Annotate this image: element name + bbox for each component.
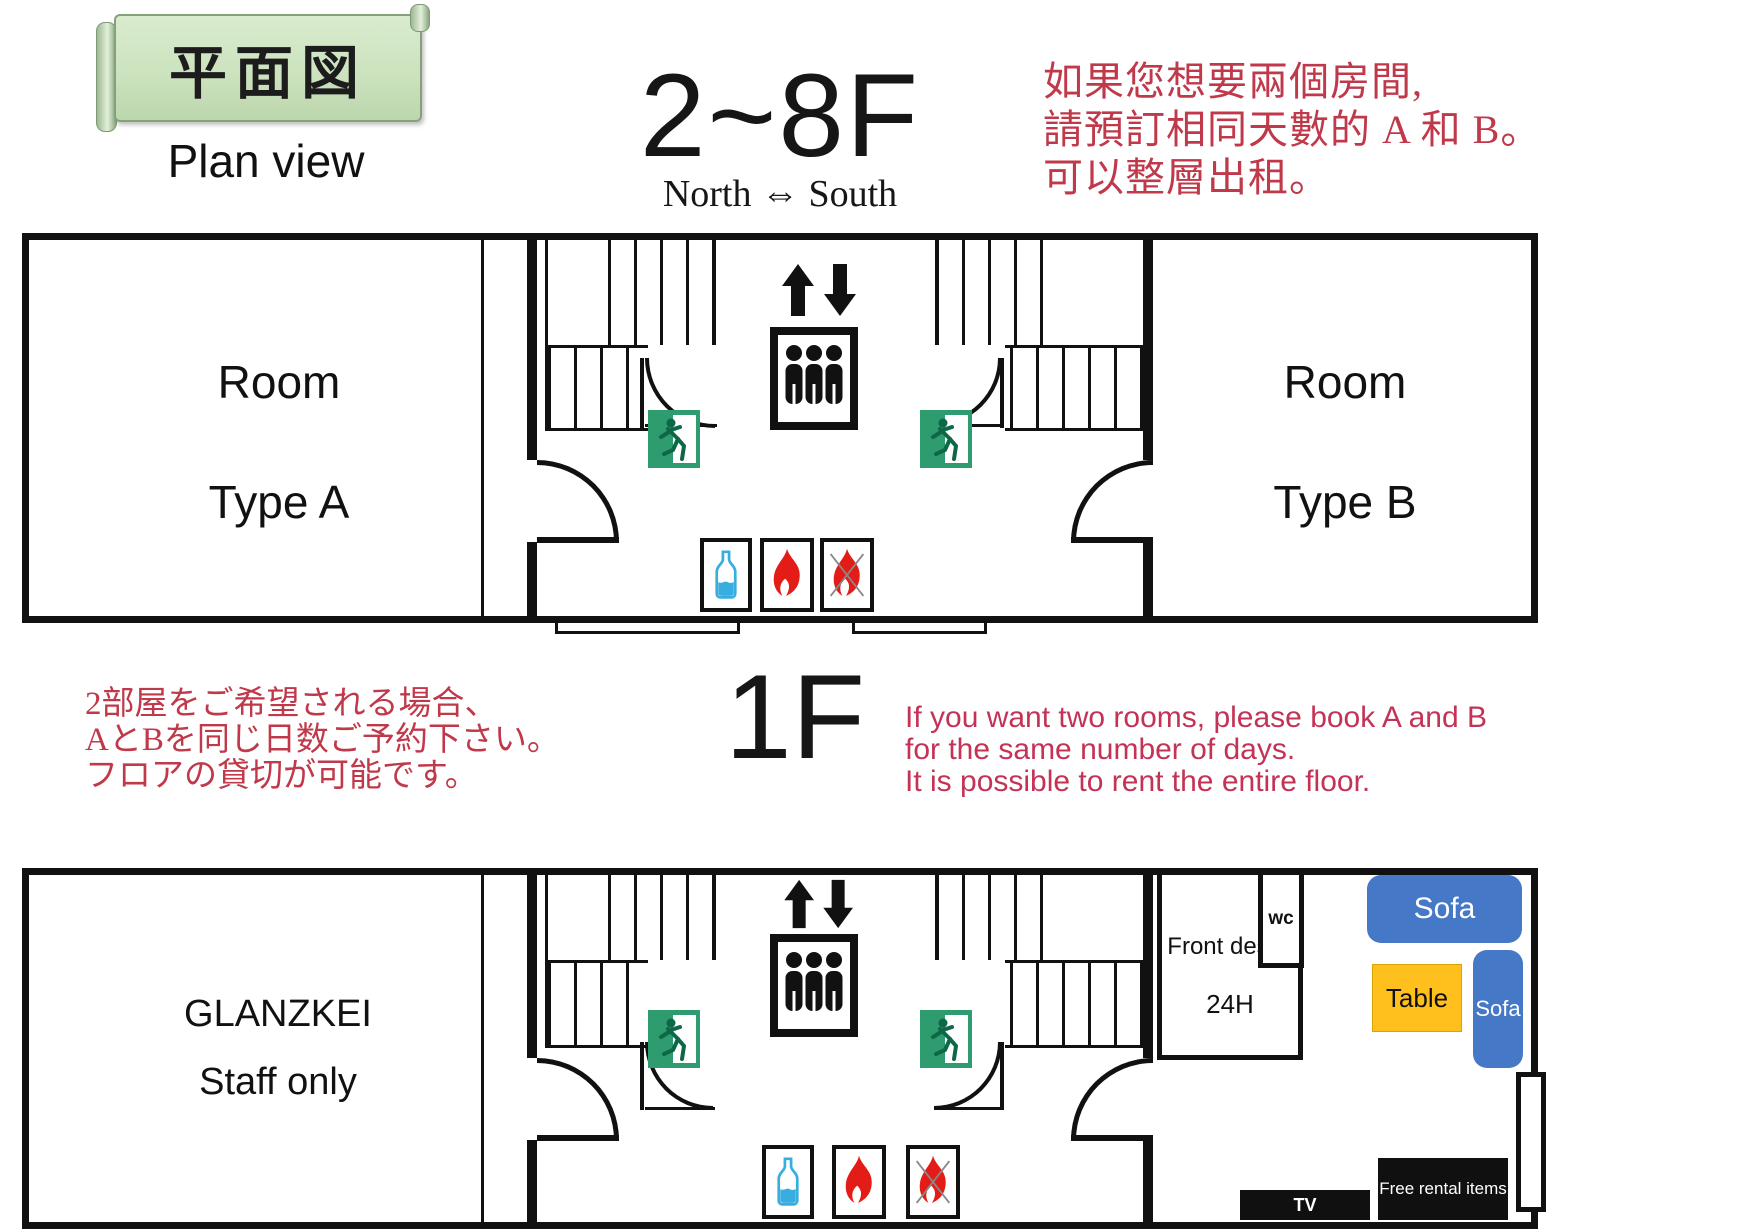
room-b-type-label: Type B [1115,475,1575,529]
note-chinese-line: 如果您想要兩個房間, [1043,58,1583,106]
sofa-side: Sofa [1473,950,1523,1068]
note-chinese: 如果您想要兩個房間, 請預訂相同天數的 A 和 B。 可以整層出租。 [1043,58,1583,202]
note-japanese-line: AとBを同じ日数ご予約下さい。 [85,722,605,758]
door-arc [537,1058,619,1140]
banner-title: 平面図 [169,26,367,110]
stairs [935,240,1043,345]
stair-landing [545,875,611,960]
door-leaf [640,1042,644,1110]
front-desk-hours: 24H [1162,989,1298,1020]
wall-segment [934,1107,1004,1110]
room-a-label: Room [49,355,509,409]
note-english-line: for the same number of days. [905,734,1525,766]
water-bottle-icon [762,1145,814,1219]
title-banner: 平面図 [96,6,436,128]
tv-stand: TV [1240,1190,1370,1220]
free-rental-items-label: Free rental items [1379,1179,1507,1199]
staff-room-name: GLANZKEI [58,993,498,1036]
fire-icon [832,1145,886,1219]
entrance-canopy [852,621,987,634]
lower-floor-title: 1F [640,648,950,786]
stairs [545,345,648,431]
emergency-exit-icon [920,410,972,468]
door-leaf [1071,1135,1153,1141]
no-fire-icon [906,1145,960,1219]
wall-segment [1143,1140,1153,1222]
door-arc [1071,1058,1153,1140]
sofa-label: Sofa [1414,892,1476,926]
sofa-top: Sofa [1367,875,1522,943]
elevator-arrows-icon [772,878,856,930]
emergency-exit-icon [648,1010,700,1068]
stairs [935,875,1043,960]
note-english: If you want two rooms, please book A and… [905,702,1525,798]
wall-segment [527,240,537,460]
wc-label: wc [1268,908,1293,930]
stairs [1005,960,1146,1048]
note-japanese-line: 2部屋をご希望される場合、 [85,686,605,722]
room-b-label: Room [1115,355,1575,409]
water-bottle-icon [700,538,752,612]
stair-landing [1040,875,1146,960]
wall-segment [527,875,537,1058]
fire-icon [760,538,814,612]
tv-label: TV [1293,1195,1316,1216]
note-english-line: It is possible to rent the entire floor. [905,766,1525,798]
emergency-exit-icon [920,1010,972,1068]
wall-segment [527,542,537,616]
wc-room: wc [1258,875,1304,968]
stairs [608,240,716,345]
note-chinese-line: 可以整層出租。 [1043,154,1583,202]
table-label: Table [1386,983,1448,1014]
stairs [608,875,716,960]
door-leaf [640,358,644,428]
banner-subtitle: Plan view [130,134,402,188]
table: Table [1372,964,1462,1032]
note-chinese-line: 請預訂相同天數的 A 和 B。 [1043,106,1583,154]
note-english-line: If you want two rooms, please book A and… [905,702,1525,734]
staff-only-label: Staff only [58,1061,498,1104]
free-rental-items-box: Free rental items [1378,1158,1508,1220]
stair-landing [545,240,611,345]
room-a-type-label: Type A [49,475,509,529]
note-japanese-line: フロアの貸切が可能です。 [85,758,605,794]
floor-plan-2-8f: Room Type A Room Type B [22,233,1538,623]
plan-view-screenshot: 平面図 Plan view 2~8F North ⇔ South 如果您想要兩個… [0,0,1754,1232]
door-leaf [537,537,619,543]
entrance-door [1516,1072,1546,1212]
direction-label: North ⇔ South [598,172,962,216]
stair-landing [1040,240,1146,345]
door-arc [537,460,619,542]
scroll-right-roll-icon [410,4,430,32]
banner-plate: 平面図 [114,14,422,122]
wall-segment [481,875,484,1222]
wall-segment [481,240,484,616]
door-leaf [1071,537,1153,543]
no-fire-icon [820,538,874,612]
note-japanese: 2部屋をご希望される場合、 AとBを同じ日数ご予約下さい。 フロアの貸切が可能で… [85,686,605,794]
door-leaf [537,1135,619,1141]
wall-segment [527,1140,537,1222]
elevator-arrows-icon [772,262,856,318]
upper-floor-title: 2~8F [600,48,960,184]
stairs [545,960,648,1048]
emergency-exit-icon [648,410,700,468]
floor-plan-1f: GLANZKEI Staff only Front desk 24H wc So… [22,868,1538,1229]
elevator-icon [770,327,858,430]
wall-segment [645,1107,715,1110]
elevator-icon [770,933,858,1038]
entrance-canopy [555,621,740,634]
sofa-label: Sofa [1475,996,1520,1022]
wall-segment [1143,542,1153,616]
